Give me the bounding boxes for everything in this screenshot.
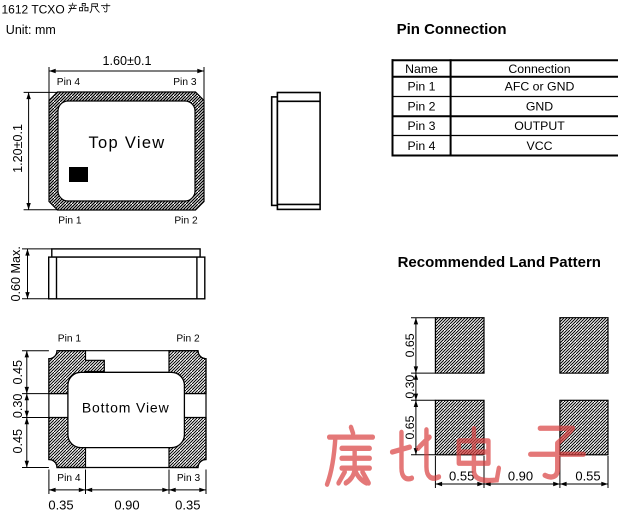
svg-text:Pin 1: Pin 1 bbox=[58, 216, 82, 227]
svg-text:0.35: 0.35 bbox=[175, 498, 200, 513]
svg-text:0.30: 0.30 bbox=[11, 394, 25, 419]
svg-text:0.55: 0.55 bbox=[575, 469, 600, 484]
svg-text:Top View: Top View bbox=[88, 134, 165, 152]
svg-text:0.60 Max.: 0.60 Max. bbox=[9, 246, 23, 301]
svg-text:Pin Connection: Pin Connection bbox=[397, 21, 507, 38]
svg-text:Pin 4: Pin 4 bbox=[57, 473, 81, 484]
svg-text:0.65: 0.65 bbox=[403, 415, 417, 439]
svg-text:OUTPUT: OUTPUT bbox=[514, 119, 565, 133]
svg-text:0.90: 0.90 bbox=[114, 498, 139, 513]
svg-text:Pin 3: Pin 3 bbox=[173, 77, 197, 88]
svg-text:0.65: 0.65 bbox=[403, 333, 417, 357]
svg-text:Pin 2: Pin 2 bbox=[176, 334, 200, 345]
svg-text:Bottom View: Bottom View bbox=[82, 399, 170, 415]
svg-text:Recommended Land Pattern: Recommended Land Pattern bbox=[398, 254, 601, 271]
svg-text:0.30: 0.30 bbox=[403, 375, 417, 399]
svg-text:0.45: 0.45 bbox=[11, 360, 25, 385]
svg-text:0.55: 0.55 bbox=[449, 469, 474, 484]
svg-text:Pin 1: Pin 1 bbox=[58, 334, 82, 345]
svg-text:Name: Name bbox=[405, 62, 438, 76]
svg-text:0.90: 0.90 bbox=[508, 469, 533, 484]
svg-text:Pin 2: Pin 2 bbox=[407, 99, 435, 113]
svg-text:Pin 3: Pin 3 bbox=[407, 119, 435, 133]
svg-text:Pin 2: Pin 2 bbox=[174, 216, 198, 227]
svg-text:GND: GND bbox=[526, 99, 553, 113]
svg-text:Connection: Connection bbox=[508, 62, 570, 76]
svg-text:0.45: 0.45 bbox=[11, 429, 25, 454]
svg-text:1612 TCXO: 1612 TCXO bbox=[2, 3, 65, 17]
svg-text:1.20±0.1: 1.20±0.1 bbox=[11, 124, 25, 173]
svg-text:0.35: 0.35 bbox=[48, 498, 73, 513]
svg-text:1.60±0.1: 1.60±0.1 bbox=[103, 54, 152, 68]
svg-text:VCC: VCC bbox=[527, 139, 553, 153]
svg-text:Unit: mm: Unit: mm bbox=[6, 23, 56, 37]
svg-text:Pin 4: Pin 4 bbox=[57, 77, 81, 88]
svg-text:Pin 1: Pin 1 bbox=[407, 80, 435, 94]
svg-text:Pin 4: Pin 4 bbox=[407, 139, 435, 153]
svg-text:Pin 3: Pin 3 bbox=[177, 473, 201, 484]
svg-text:AFC or GND: AFC or GND bbox=[505, 80, 575, 94]
